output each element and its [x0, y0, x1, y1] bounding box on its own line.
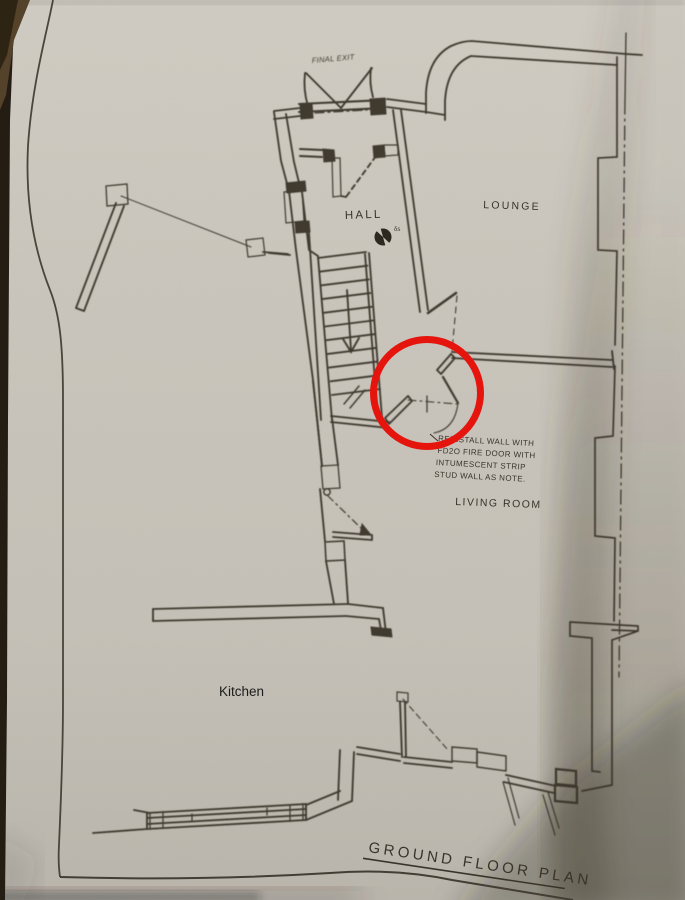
svg-text:Kitchen: Kitchen	[219, 684, 264, 699]
svg-text:LOUNGE: LOUNGE	[483, 199, 541, 213]
svg-text:δs: δs	[394, 227, 400, 233]
svg-text:HALL: HALL	[345, 209, 383, 222]
